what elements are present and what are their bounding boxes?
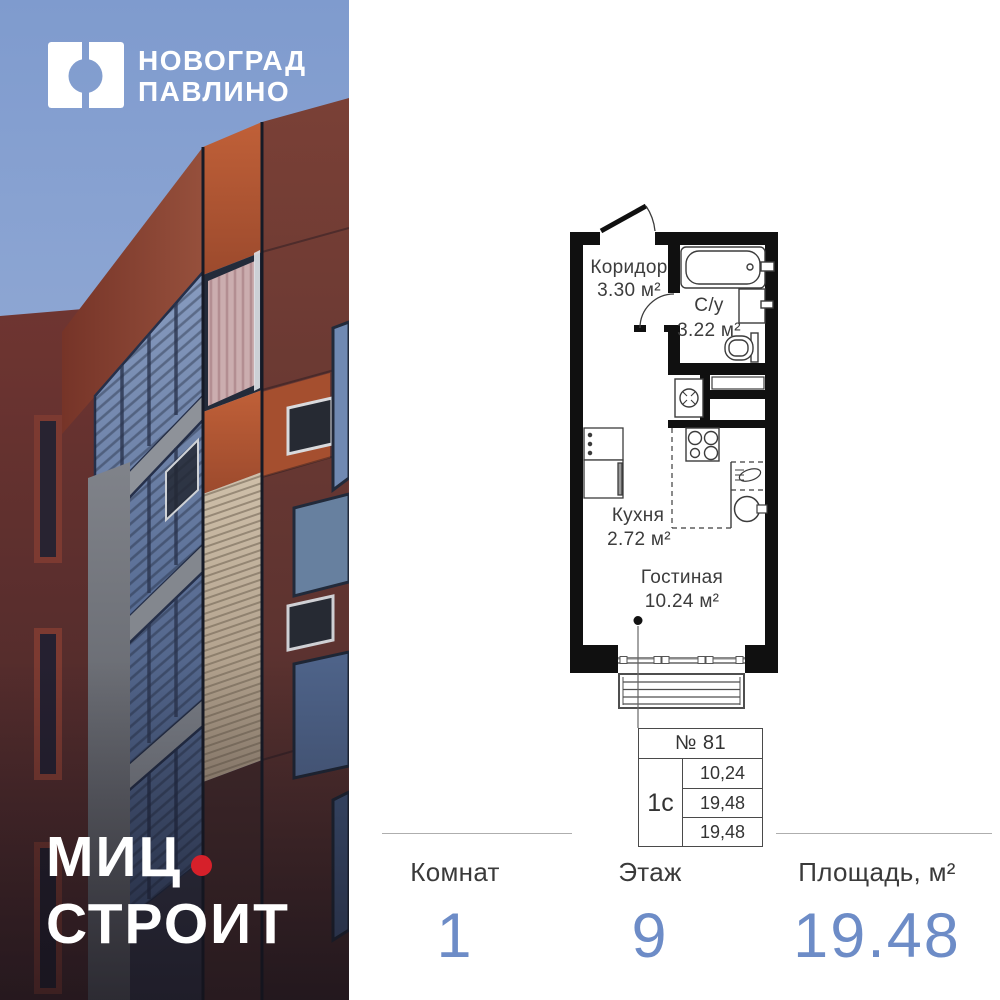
room-name-corridor: Коридор bbox=[590, 257, 667, 278]
room-area-corridor: 3.30 м² bbox=[597, 280, 661, 301]
plan-point bbox=[634, 616, 643, 625]
area-label: Площадь, м² bbox=[762, 857, 992, 888]
washing-machine bbox=[675, 379, 703, 417]
unit-number: № 81 bbox=[639, 729, 762, 759]
summary-area: Площадь, м² 19.48 bbox=[762, 857, 992, 968]
room-name-kitchen: Кухня bbox=[612, 505, 664, 526]
fridge bbox=[584, 428, 623, 498]
room-area-kitchen: 2.72 м² bbox=[607, 529, 671, 550]
unit-type: 1с bbox=[639, 759, 683, 847]
room-name-living: Гостиная bbox=[641, 567, 723, 588]
unit-area-living: 10,24 bbox=[683, 759, 762, 789]
unit-areas: 10,24 19,48 19,48 bbox=[683, 759, 762, 847]
floor-plan: Коридор 3.30 м² С/у 3.22 м² Кухня 2.72 м… bbox=[0, 0, 1000, 1000]
divider-left bbox=[382, 833, 572, 834]
unit-info-table: № 81 1с 10,24 19,48 19,48 bbox=[638, 728, 763, 847]
unit-area-total: 19,48 bbox=[683, 789, 762, 819]
area-value: 19.48 bbox=[762, 904, 992, 968]
rooms-value: 1 bbox=[380, 904, 530, 968]
rooms-label: Комнат bbox=[380, 857, 530, 888]
room-area-living: 10.24 м² bbox=[645, 591, 720, 612]
unit-table-body: 1с 10,24 19,48 19,48 bbox=[639, 759, 762, 847]
room-area-bathroom: 3.22 м² bbox=[677, 320, 741, 341]
divider-right bbox=[776, 833, 992, 834]
bathtub bbox=[681, 247, 774, 288]
summary-floor: Этаж 9 bbox=[575, 857, 725, 968]
stove bbox=[686, 428, 719, 461]
listing-card: НОВОГРАД ПАВЛИНО МИЦ СТРОИТ bbox=[0, 0, 1000, 1000]
floor-value: 9 bbox=[575, 904, 725, 968]
summary-rooms: Комнат 1 bbox=[380, 857, 530, 968]
room-name-bathroom: С/у bbox=[694, 295, 724, 316]
unit-area-total2: 19,48 bbox=[683, 818, 762, 847]
entrance-door bbox=[601, 206, 655, 231]
floor-label: Этаж bbox=[575, 857, 725, 888]
shaft-niche bbox=[712, 377, 764, 389]
window bbox=[618, 657, 745, 665]
